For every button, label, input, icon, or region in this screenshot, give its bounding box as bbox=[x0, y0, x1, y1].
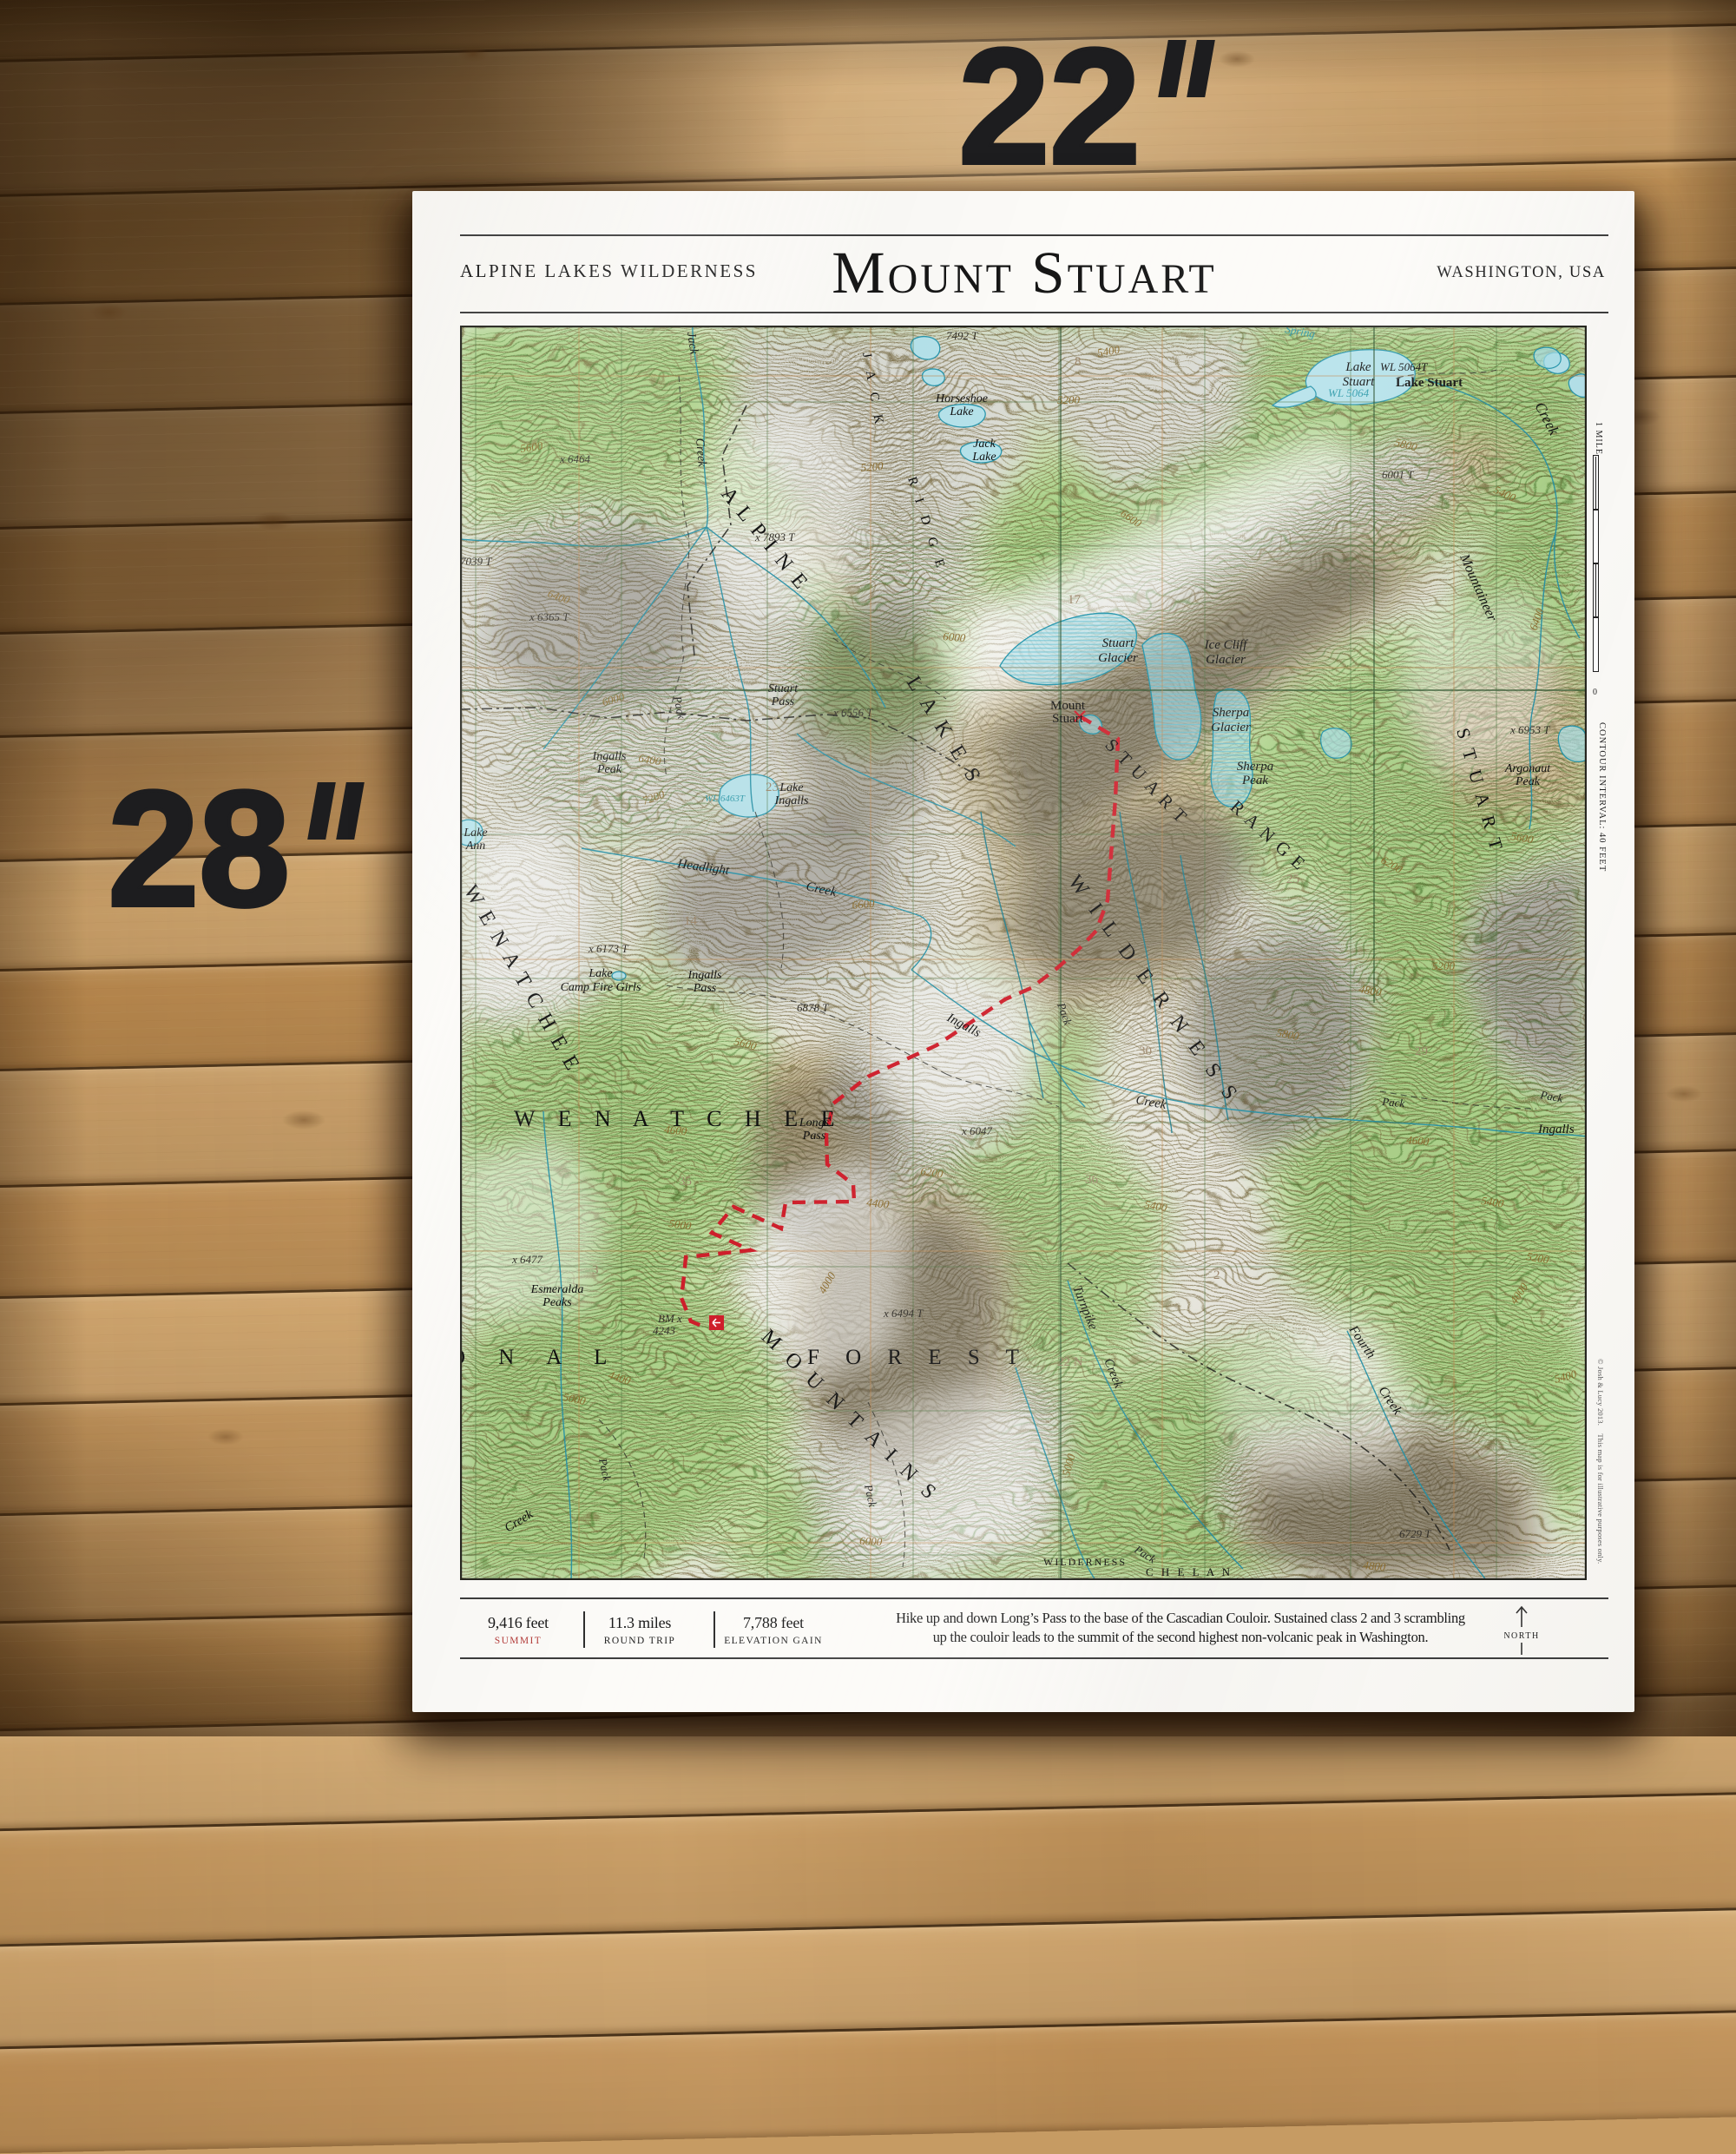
svg-text:2: 2 bbox=[1213, 1268, 1220, 1282]
svg-text:4400: 4400 bbox=[866, 1196, 891, 1211]
svg-text:36: 36 bbox=[1085, 1173, 1099, 1187]
svg-text:Glacier: Glacier bbox=[1098, 651, 1138, 665]
svg-text:Peak: Peak bbox=[1515, 775, 1541, 788]
svg-text:WL 5064: WL 5064 bbox=[1328, 386, 1370, 399]
svg-text:6000: 6000 bbox=[859, 1534, 883, 1548]
svg-text:Ice Cliff: Ice Cliff bbox=[1204, 638, 1249, 652]
svg-text:Horseshoe: Horseshoe bbox=[935, 392, 988, 405]
svg-text:x 6477: x 6477 bbox=[511, 1253, 543, 1266]
svg-text:x 6047: x 6047 bbox=[961, 1124, 993, 1137]
svg-text:Glacier: Glacier bbox=[1211, 721, 1251, 734]
svg-text:Lake: Lake bbox=[463, 827, 487, 840]
svg-text:x 6494 T: x 6494 T bbox=[883, 1307, 924, 1320]
svg-text:Pack: Pack bbox=[1381, 1095, 1405, 1110]
svg-text:5200: 5200 bbox=[1057, 393, 1081, 406]
svg-text:WL 5064T: WL 5064T bbox=[1380, 360, 1428, 373]
svg-text:23: 23 bbox=[766, 781, 779, 794]
svg-text:4600: 4600 bbox=[664, 1123, 688, 1137]
svg-text:17: 17 bbox=[1068, 593, 1082, 607]
svg-text:x 6953 T: x 6953 T bbox=[1509, 723, 1550, 736]
svg-text:Sherpa: Sherpa bbox=[1237, 760, 1274, 774]
svg-text:Ingalls: Ingalls bbox=[592, 750, 627, 763]
svg-text:30: 30 bbox=[1139, 1044, 1152, 1058]
svg-text:Glacier: Glacier bbox=[1206, 653, 1246, 667]
svg-text:Peak: Peak bbox=[1241, 774, 1268, 787]
svg-text:Mount: Mount bbox=[1050, 699, 1086, 713]
svg-text:6878 T: 6878 T bbox=[797, 1001, 829, 1014]
svg-text:O N A L: O N A L bbox=[460, 1346, 621, 1369]
svg-text:6729 T: 6729 T bbox=[1399, 1527, 1431, 1540]
svg-text:Pass: Pass bbox=[771, 695, 795, 708]
svg-text:Longs: Longs bbox=[799, 1117, 830, 1130]
svg-text:Ingalls: Ingalls bbox=[774, 794, 809, 807]
svg-text:8: 8 bbox=[1075, 355, 1082, 369]
svg-text:x 6464: x 6464 bbox=[559, 452, 591, 465]
svg-text:Stuart: Stuart bbox=[1052, 712, 1084, 726]
svg-text:Lake: Lake bbox=[949, 405, 973, 418]
svg-text:Sherpa: Sherpa bbox=[1213, 706, 1250, 720]
svg-text:4243: 4243 bbox=[653, 1324, 676, 1337]
svg-text:Ann: Ann bbox=[465, 840, 486, 853]
svg-text:5200: 5200 bbox=[1432, 959, 1456, 972]
svg-text:Creek: Creek bbox=[693, 438, 708, 468]
svg-text:4600: 4600 bbox=[1406, 1133, 1430, 1148]
svg-text:25: 25 bbox=[1286, 873, 1299, 886]
svg-text:x 6365 T: x 6365 T bbox=[529, 610, 569, 623]
svg-text:Jack: Jack bbox=[973, 438, 996, 451]
svg-text:Peak: Peak bbox=[596, 763, 622, 776]
svg-text:Pass: Pass bbox=[802, 1130, 826, 1143]
svg-text:x 6173 T: x 6173 T bbox=[588, 942, 628, 955]
svg-text:Argonaut: Argonaut bbox=[1504, 762, 1551, 775]
svg-text:Peaks: Peaks bbox=[542, 1296, 572, 1309]
svg-text:Pass: Pass bbox=[693, 982, 717, 995]
svg-text:Lake Stuart: Lake Stuart bbox=[1396, 376, 1463, 390]
svg-text:WL 6463T: WL 6463T bbox=[705, 794, 746, 804]
svg-text:Lake: Lake bbox=[779, 781, 803, 794]
svg-text:35: 35 bbox=[679, 1175, 692, 1189]
svg-text:29: 29 bbox=[1415, 1044, 1428, 1058]
svg-text:Lake: Lake bbox=[971, 451, 996, 464]
svg-text:11: 11 bbox=[687, 352, 700, 366]
svg-text:7039 T: 7039 T bbox=[460, 555, 492, 568]
svg-text:Ingalls: Ingalls bbox=[1537, 1123, 1575, 1136]
svg-text:x 6556 T: x 6556 T bbox=[832, 706, 873, 719]
svg-text:5200: 5200 bbox=[860, 459, 884, 474]
svg-text:Lake: Lake bbox=[588, 967, 612, 980]
svg-text:Esmeralda: Esmeralda bbox=[530, 1283, 584, 1296]
svg-text:6600: 6600 bbox=[852, 897, 876, 912]
svg-text:4800: 4800 bbox=[1363, 1558, 1387, 1573]
svg-text:Stuart: Stuart bbox=[1102, 636, 1135, 650]
svg-text:6000: 6000 bbox=[943, 629, 967, 644]
svg-text:Camp Fire Girls: Camp Fire Girls bbox=[561, 981, 641, 994]
svg-text:C H E L A N: C H E L A N bbox=[1146, 1565, 1233, 1578]
svg-text:7492 T: 7492 T bbox=[946, 329, 978, 342]
svg-text:6001 T: 6001 T bbox=[1382, 468, 1414, 481]
svg-text:Ingalls: Ingalls bbox=[687, 969, 722, 982]
svg-text:3: 3 bbox=[592, 1263, 599, 1277]
svg-text:F O R E S T: F O R E S T bbox=[807, 1346, 1029, 1369]
svg-text:14: 14 bbox=[684, 914, 698, 928]
svg-text:Stuart: Stuart bbox=[768, 682, 799, 695]
svg-text:BM x: BM x bbox=[658, 1312, 682, 1325]
svg-text:Lake: Lake bbox=[1345, 360, 1371, 374]
svg-text:WILDERNESS: WILDERNESS bbox=[1043, 1556, 1127, 1568]
svg-text:x 7893 T: x 7893 T bbox=[754, 530, 795, 543]
svg-text:22 N: 22 N bbox=[1057, 1355, 1083, 1369]
svg-text:NORTH: NORTH bbox=[1504, 1631, 1539, 1641]
